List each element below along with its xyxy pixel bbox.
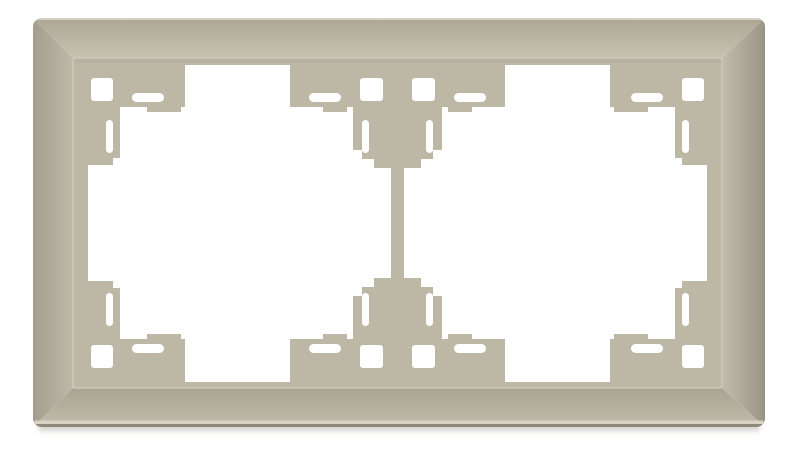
mount-slot-vertical xyxy=(682,120,689,153)
bevel-top xyxy=(33,18,765,58)
mount-slot-horizontal xyxy=(631,93,663,102)
divider-bar xyxy=(391,222,404,279)
tab-foot xyxy=(614,107,648,112)
mount-slot-horizontal xyxy=(454,344,486,353)
mount-hole-square xyxy=(412,78,435,101)
switch-frame xyxy=(33,18,765,427)
mount-slot-horizontal xyxy=(309,93,341,102)
outer-edge-bottom-dark xyxy=(33,424,765,427)
mount-slot-horizontal xyxy=(631,344,663,353)
mount-slot-vertical xyxy=(362,293,369,326)
divider-step-2 xyxy=(374,278,421,287)
mount-hole-square xyxy=(360,78,383,101)
mount-slot-vertical xyxy=(682,293,689,326)
divider-step-2 xyxy=(374,159,421,168)
divider-bar xyxy=(391,167,404,224)
mount-hole-square xyxy=(412,345,435,368)
tab-foot xyxy=(614,334,648,339)
bevel-right xyxy=(722,18,765,427)
tab-foot xyxy=(147,107,181,112)
tab-foot xyxy=(448,334,472,339)
bevel-left xyxy=(33,18,73,427)
tab-foot xyxy=(323,334,347,339)
outer-edge-right-dark xyxy=(763,18,765,427)
tab-foot xyxy=(448,107,472,112)
photo-canvas xyxy=(0,0,800,449)
mount-slot-vertical xyxy=(106,293,113,326)
product-image-double-switch-frame xyxy=(0,0,800,449)
mount-slot-vertical xyxy=(426,293,433,326)
mount-slot-horizontal xyxy=(132,344,164,353)
mount-slot-vertical xyxy=(106,120,113,153)
outer-edge-top-highlight xyxy=(33,18,765,20)
divider-step-1 xyxy=(362,287,433,296)
outer-edge-left-dark xyxy=(33,18,35,427)
mount-hole-square xyxy=(91,78,113,101)
mount-hole-square xyxy=(682,78,704,101)
mount-slot-horizontal xyxy=(309,344,341,353)
outer-edge-bottom-highlight xyxy=(33,421,765,425)
mount-hole-square xyxy=(360,345,383,368)
mount-slot-horizontal xyxy=(454,93,486,102)
tab-foot xyxy=(323,107,347,112)
mount-slot-vertical xyxy=(426,120,433,153)
tab-foot xyxy=(147,334,181,339)
mount-hole-square xyxy=(91,345,113,368)
mount-slot-horizontal xyxy=(132,93,164,102)
divider-step-1 xyxy=(362,150,433,159)
mount-slot-vertical xyxy=(362,120,369,153)
mount-hole-square xyxy=(682,345,704,368)
